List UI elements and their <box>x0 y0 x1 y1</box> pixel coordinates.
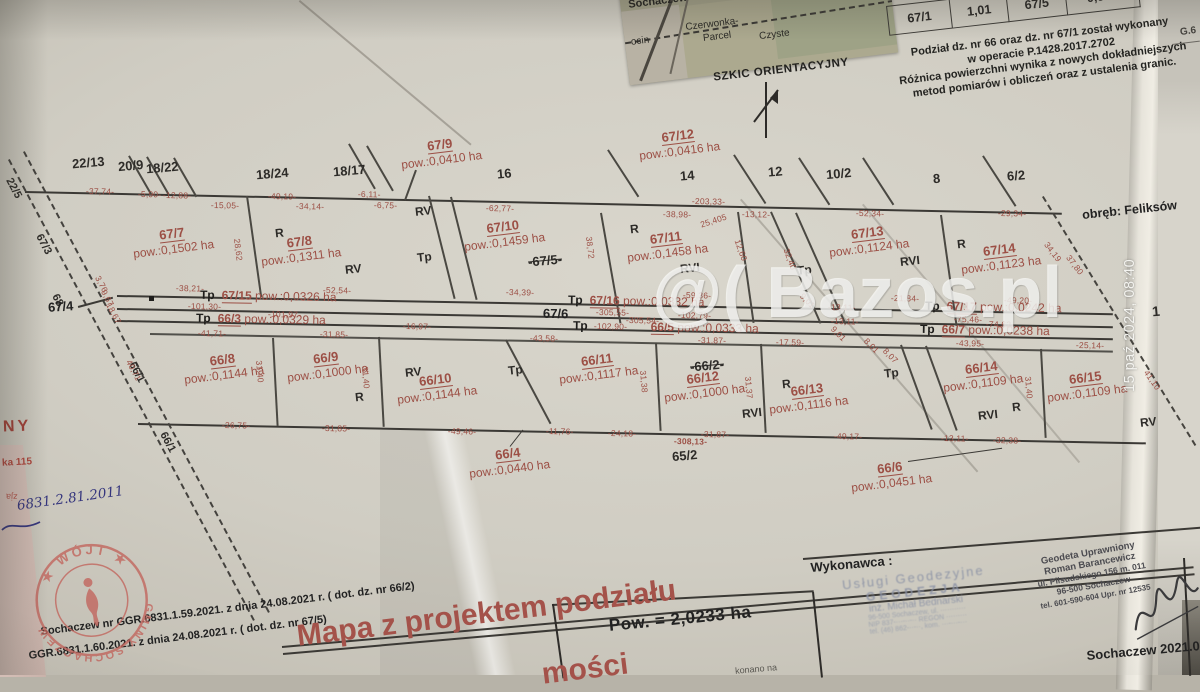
strip-parcel-label: Tp66/3 pow.:0,0329 ha <box>196 311 326 327</box>
red-text-fragment: zja <box>6 492 18 503</box>
measurement-label: -13,12- <box>742 209 771 219</box>
parcel-pointer-label: 67/4 <box>48 298 74 315</box>
measurement-label: -24,18- <box>608 428 637 438</box>
soil-class: R <box>629 222 639 237</box>
measurement-label: -15,05- <box>211 200 240 210</box>
measurement-label: 31,40 <box>1023 376 1035 399</box>
measurement-label: -62,77- <box>486 203 515 213</box>
soil-class: Tp <box>883 365 899 380</box>
measurement-label: -31,85- <box>320 329 349 339</box>
red-text-fragment: ka 115 <box>2 456 33 469</box>
measurement-label: -31,87- <box>698 335 727 345</box>
neighbor-parcel: 18/17 <box>332 162 366 180</box>
measurement-label: -41,71- <box>198 328 227 338</box>
measurement-label: -38,98- <box>663 209 692 219</box>
measurement-label: -308,13- <box>674 436 707 447</box>
soil-class: Tp <box>507 362 523 377</box>
measurement-label: -32,38- <box>993 435 1022 445</box>
measurement-label: -26,75- <box>222 420 251 430</box>
measurement-label: -305,55- <box>596 307 629 318</box>
measurement-label: -43,58- <box>530 333 559 343</box>
measurement-label: 31,40 <box>360 366 372 389</box>
neighbor-parcel: 6/2 <box>1006 167 1025 184</box>
soil-class: RV <box>344 261 362 277</box>
soil-class: RV <box>404 364 422 380</box>
soil-class: Tp <box>416 249 432 264</box>
measurement-label: -38,21- <box>176 283 205 293</box>
handwritten-flourish <box>0 516 45 536</box>
stamp-text-bottom: GMINY SOCHACZEW <box>35 600 164 674</box>
measurement-label: -16,97- <box>403 321 432 331</box>
soil-class: RVI <box>977 407 998 423</box>
parcel-id: 66/3 <box>218 311 242 326</box>
soil-class: R <box>956 237 966 252</box>
svg-text:★ WÓJT ★: ★ WÓJT ★ <box>32 533 134 587</box>
survey-point-marker <box>149 296 154 301</box>
crossed-parcel-label: -67/5- <box>527 252 562 270</box>
measurement-label: -203,33- <box>692 196 725 207</box>
neighbor-parcel: 10/2 <box>825 165 852 182</box>
measurement-label: -102,90- <box>594 321 627 332</box>
neighbor-parcel: 16 <box>496 165 512 181</box>
measurement-label: -52,34- <box>856 208 885 218</box>
stamp-text-top: ★ WÓJT ★ <box>32 533 134 587</box>
measurement-label: -43,95- <box>956 338 985 348</box>
red-text-fragment: NY <box>3 418 32 437</box>
measurement-label: -37,74- <box>86 186 115 196</box>
neighbor-parcel: 22/13 <box>71 154 105 172</box>
soil-class: RV <box>1139 414 1157 430</box>
neighbor-parcel: 12 <box>767 163 783 179</box>
measurement-label: -29,34- <box>998 208 1027 218</box>
soil-class: R <box>781 377 791 392</box>
measurement-label: -12,88- <box>163 190 192 200</box>
measurement-label: -25,14- <box>1076 340 1105 350</box>
corner-table-fragment: G.6 <box>1179 25 1196 38</box>
soil-class: Tp <box>573 318 588 332</box>
neighbor-parcel: 20/9 <box>117 157 144 174</box>
soil-class: Tp <box>196 311 211 325</box>
measurement-label: -11,76- <box>546 426 574 436</box>
soil-class: RV <box>414 203 432 219</box>
measurement-label: -6,11- <box>358 189 381 199</box>
measurement-label: -52,54- <box>323 285 352 295</box>
measurement-label: -34,39- <box>506 287 535 297</box>
measurement-label: 31,38 <box>638 370 650 393</box>
neighbor-parcel: 8 <box>932 171 941 187</box>
measurement-label: -49,46- <box>448 426 477 436</box>
measurement-label: -17,59- <box>776 337 805 347</box>
neighbor-parcel: 14 <box>679 167 695 183</box>
photo-timestamp: 15 paź 2024, 08:40 <box>1122 80 1138 392</box>
neighbor-parcel: 65/2 <box>671 447 698 464</box>
parcel-id: 67/15 <box>222 288 252 304</box>
measurement-label: -5,90- <box>138 189 162 199</box>
neighbor-parcel: 1 <box>1151 303 1160 320</box>
measurement-label: -49,19- <box>268 191 297 201</box>
neighbor-parcel: 18/24 <box>255 165 289 183</box>
neighbor-parcel: 18/22 <box>145 159 179 177</box>
measurement-label: 31,37 <box>743 376 755 399</box>
inset-place-label: ocin <box>630 35 650 48</box>
measurement-label: -101,97- <box>268 309 301 320</box>
measurement-label: 31,40 <box>254 360 266 383</box>
watermark: @( Bazos.pl <box>652 252 1062 334</box>
parcel-pointer-label: 67/6 <box>543 306 569 321</box>
soil-class: RVI <box>741 405 762 421</box>
measurement-label: -13,11- <box>941 433 969 443</box>
soil-class: R <box>1011 400 1021 415</box>
measurement-label: -31,85- <box>322 423 351 433</box>
soil-class: Tp <box>568 293 583 307</box>
soil-class: R <box>354 390 364 405</box>
north-arrow-icon <box>748 80 784 142</box>
inset-place-label: Parcel <box>702 30 731 44</box>
measurement-label: -49,17- <box>834 431 863 441</box>
measurement-label: -101,30- <box>188 301 221 312</box>
measurement-label: -34,14- <box>296 201 325 211</box>
soil-class: R <box>274 226 284 241</box>
measurement-label: -6,75- <box>374 200 398 210</box>
svg-text:GMINY SOCHACZEW: GMINY SOCHACZEW <box>35 600 164 674</box>
